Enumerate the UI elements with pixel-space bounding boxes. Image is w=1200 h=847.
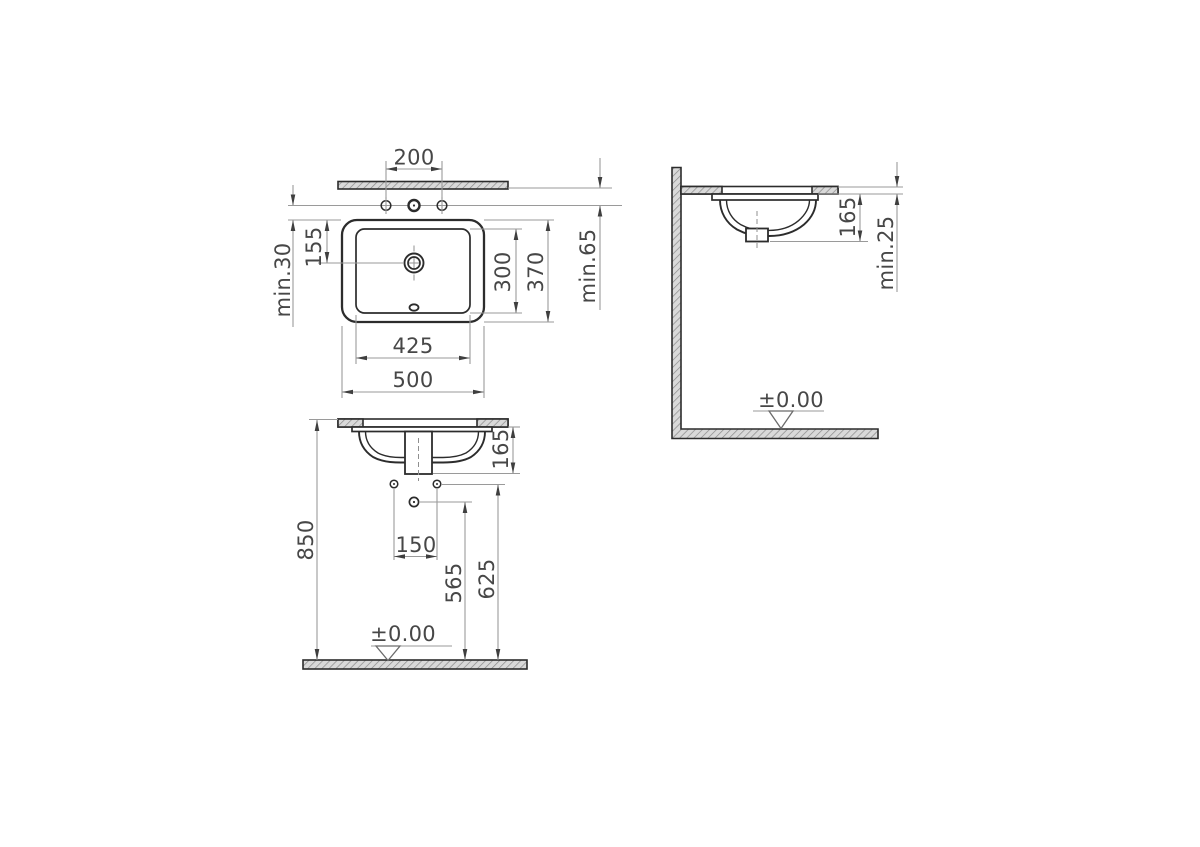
washbasin-technical-drawing: 200 155 min.30 300 370 min.65 425 500	[0, 0, 1200, 847]
side-view: ±0.00 165 min.25	[672, 162, 903, 439]
fixing-hole-left-dot	[393, 483, 395, 485]
dim-label-counter-height: 850	[294, 520, 318, 561]
plan-basin-outer-rim	[342, 220, 484, 322]
dim-label-front-bowl-depth: 165	[489, 429, 513, 470]
side-counter-hatch-left	[681, 187, 722, 195]
plan-wall-strip	[338, 182, 508, 190]
dim-label-fixing-height: 625	[475, 559, 499, 600]
plan-basin-inner-bowl	[356, 229, 470, 313]
front-datum-label: ±0.00	[370, 622, 436, 646]
dim-label-fixing-spacing: 150	[396, 533, 437, 557]
side-counter-hatch-right	[812, 187, 838, 195]
front-datum: ±0.00	[370, 622, 452, 661]
dim-label-min25: min.25	[874, 216, 898, 291]
dim-label-side-bowl-depth: 165	[836, 197, 860, 238]
plan-center-hole	[409, 200, 420, 211]
front-countertop	[338, 419, 508, 427]
plan-view: 200 155 min.30 300 370 min.65 425 500	[271, 146, 622, 399]
overflow-slot	[410, 304, 419, 310]
dim-label-rim-to-drain: 155	[302, 227, 326, 268]
waste-outlet-dot	[413, 501, 415, 503]
front-drain-tailpiece	[405, 432, 432, 475]
side-datum-triangle	[769, 411, 793, 429]
dim-label-outer-depth: 370	[524, 252, 548, 293]
front-datum-triangle	[376, 646, 400, 661]
front-waste-outlet	[409, 497, 418, 506]
fixing-hole-right-dot	[436, 483, 438, 485]
center-hole-dot	[413, 204, 415, 206]
dim-label-min65: min.65	[576, 229, 600, 304]
dim-label-inner-width: 425	[393, 334, 434, 358]
side-basin-flange	[712, 194, 818, 200]
front-fixing-hole-right	[433, 480, 441, 488]
front-counter-hatch-right	[477, 419, 508, 427]
dim-label-outer-width: 500	[393, 368, 434, 392]
plan-drain	[405, 246, 424, 281]
dim-label-tap-spacing: 200	[394, 146, 435, 170]
dim-label-inner-depth: 300	[491, 252, 515, 293]
side-bowl-inner	[727, 200, 810, 230]
front-counter-hatch-left	[338, 419, 363, 427]
dim-label-min30: min.30	[271, 243, 295, 318]
front-view: ±0.00 165 150 565 625 850	[294, 419, 527, 669]
dim-label-waste-height: 565	[442, 563, 466, 604]
drawing-canvas: 200 155 min.30 300 370 min.65 425 500	[0, 0, 1200, 847]
front-floor-strip	[303, 660, 527, 669]
front-fixing-hole-left	[390, 480, 398, 488]
side-datum: ±0.00	[753, 388, 824, 429]
side-datum-label: ±0.00	[758, 388, 824, 412]
side-countertop	[681, 187, 838, 195]
